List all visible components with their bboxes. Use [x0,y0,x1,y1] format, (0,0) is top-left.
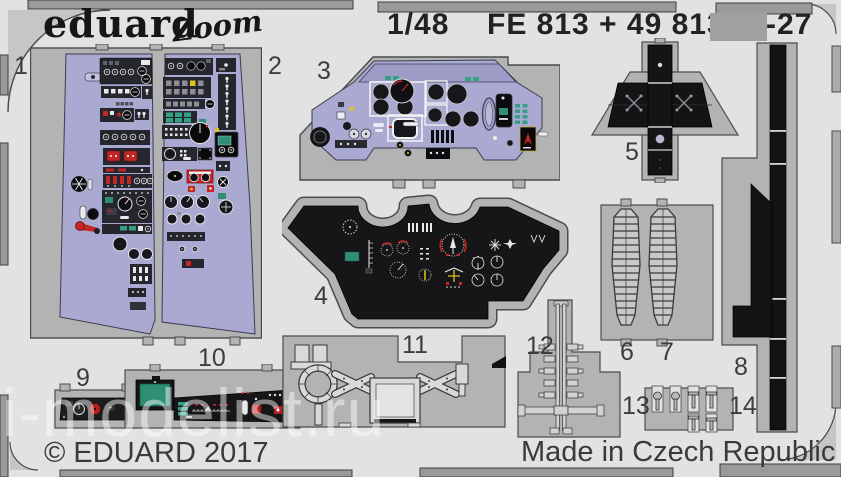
fret-plate-part-12 [516,298,622,439]
part-label-13: 13 [622,392,650,421]
part-label-14: 14 [729,392,757,421]
part-5-shroud [608,45,712,175]
part-label-2: 2 [268,52,282,81]
part-2-console-panel [162,54,255,334]
product-code: FE 813 + 49 813 [487,8,725,42]
made-in-label: Made in Czech Republic [521,436,835,469]
product-code-suffix: -27 [766,8,812,42]
part-label-5: 5 [625,138,639,167]
part-label-10: 10 [198,344,226,373]
censored-text-box [710,13,767,41]
part-label-9: 9 [76,364,90,393]
part-label-7: 7 [660,338,674,367]
copyright-label: © EDUARD 2017 [44,437,268,470]
part-label-11: 11 [402,331,428,360]
part-label-3: 3 [317,57,331,86]
etch-sheet-scan: i-modelist.ru eduard Zoom 1/48 FE 813 + … [0,0,841,477]
sheet-edge-strips [832,46,841,408]
part-label-1: 1 [14,52,28,81]
fret-plate-part-8 [710,40,800,435]
fret-plate-parts-13-14 [641,384,737,434]
fret-plate-parts-1-2 [30,44,262,356]
part-label-4: 4 [314,282,328,311]
scale-label: 1/48 [387,8,449,42]
part-label-6: 6 [620,338,634,367]
part-1-console-panel [60,54,155,334]
part-label-12: 12 [526,332,554,361]
part-label-8: 8 [734,353,748,382]
